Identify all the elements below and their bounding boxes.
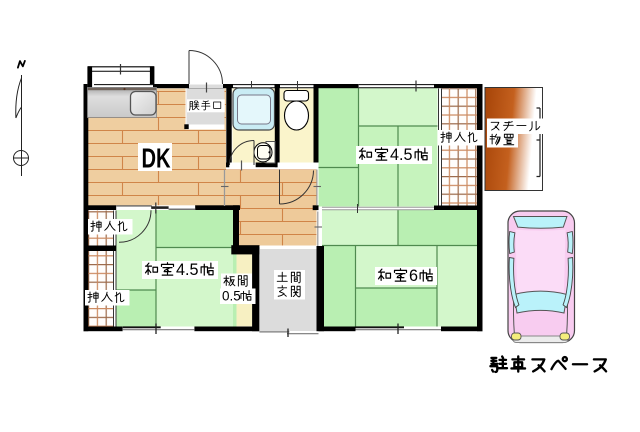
svg-text:6: 6 [409, 267, 418, 285]
svg-text:4.5: 4.5 [390, 146, 413, 164]
svg-text:4.5: 4.5 [176, 261, 199, 279]
svg-text:0.5: 0.5 [222, 288, 241, 303]
svg-text:DK: DK [142, 143, 171, 174]
